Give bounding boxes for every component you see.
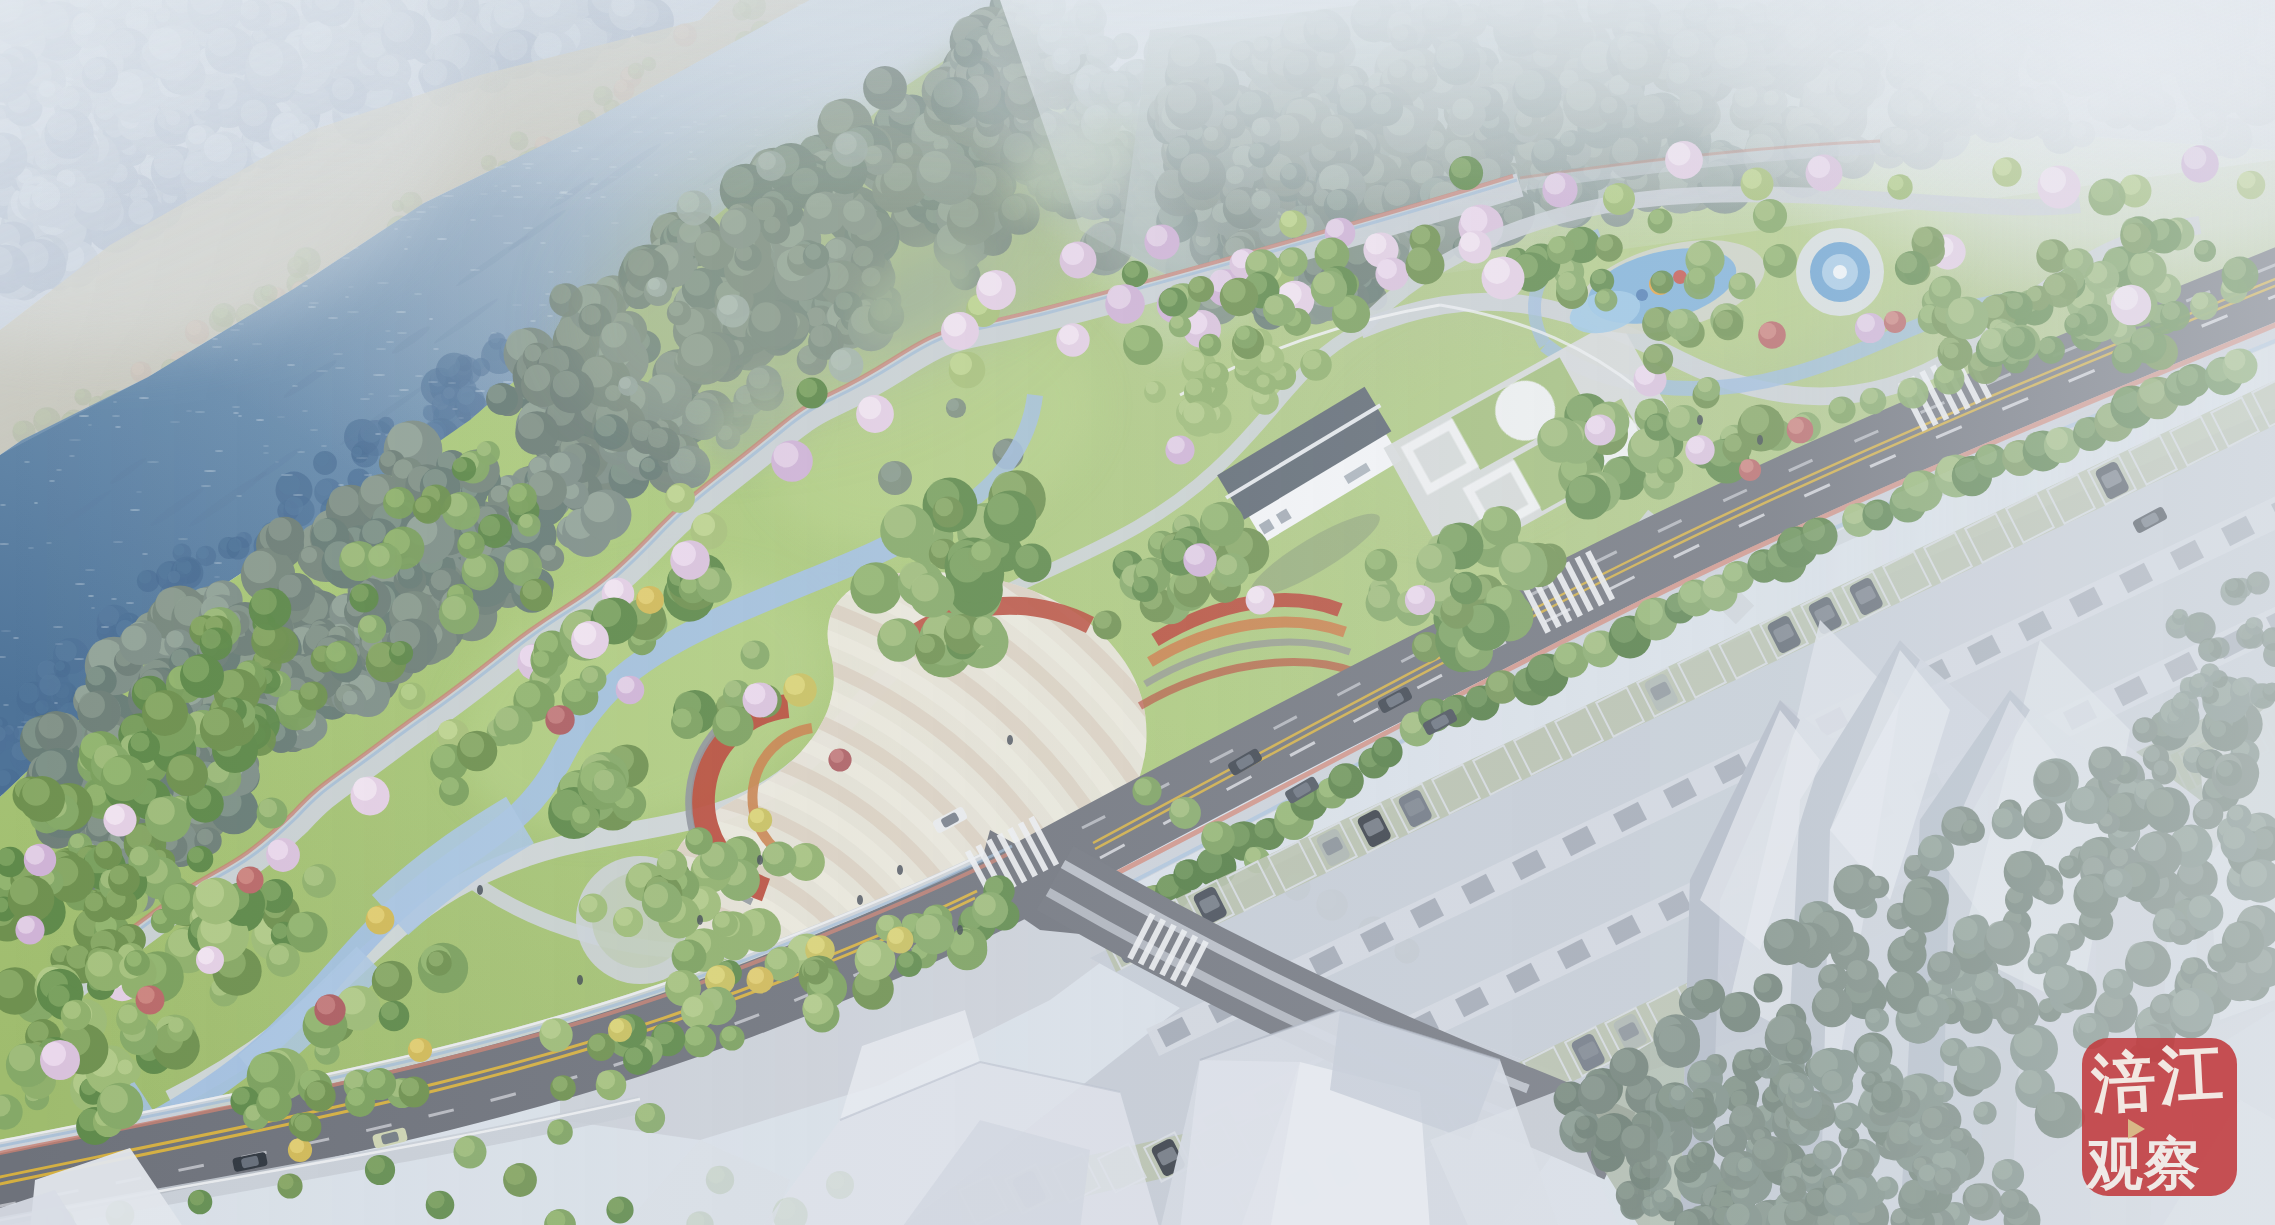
svg-text:涪: 涪 [2089, 1046, 2158, 1120]
svg-text:观察: 观察 [2085, 1132, 2201, 1195]
svg-text:江: 江 [2156, 1038, 2225, 1112]
